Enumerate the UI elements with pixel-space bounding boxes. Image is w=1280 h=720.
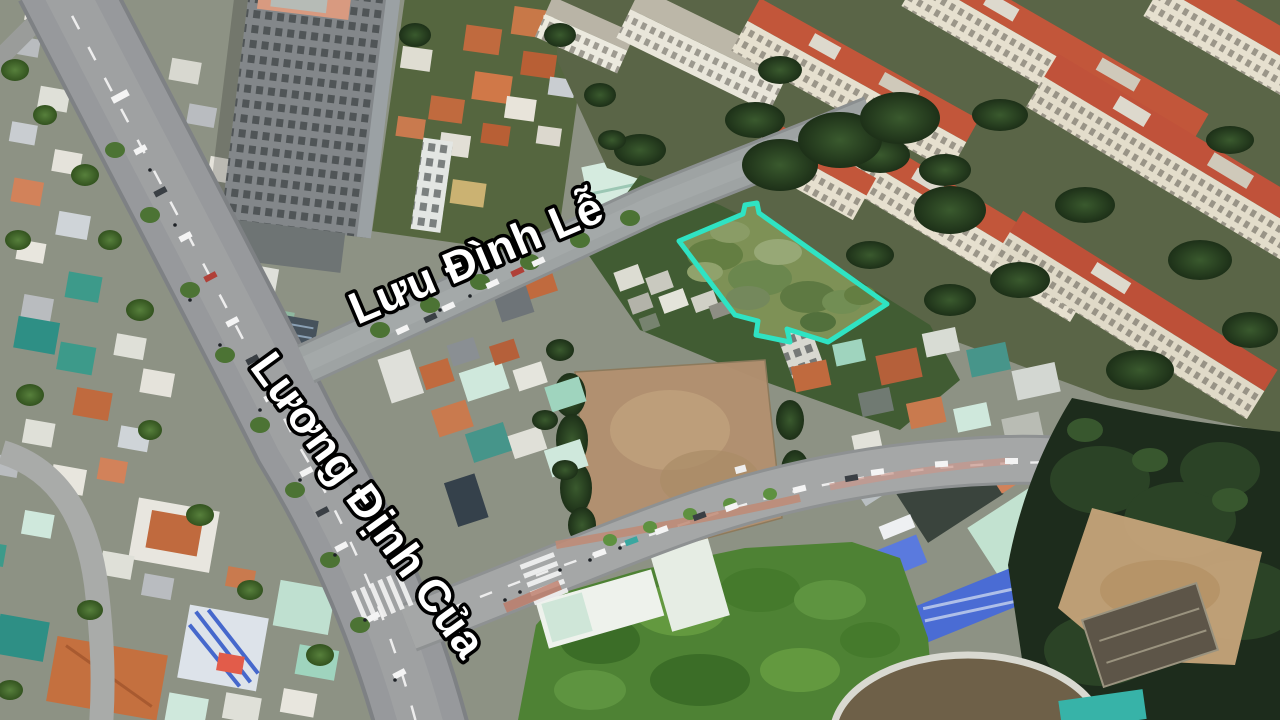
aerial-photo: Lưu Đình Lễ Lương Định Của: [0, 0, 1280, 720]
aerial-scene: Lưu Đình Lễ Lương Định Của: [0, 0, 1280, 720]
